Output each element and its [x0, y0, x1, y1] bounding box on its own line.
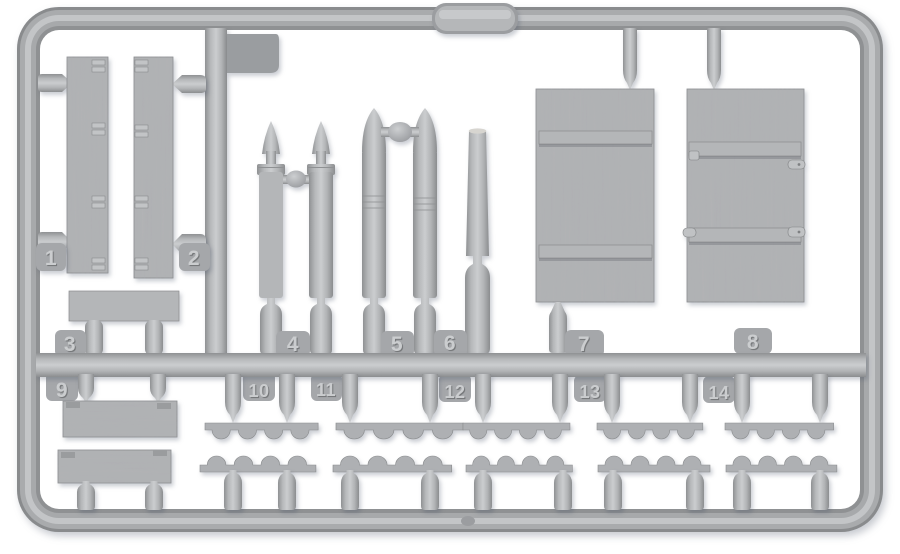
part-number: 7: [578, 333, 590, 356]
part-number: 14: [708, 383, 729, 403]
part-number: 12: [444, 382, 465, 402]
part-number: 1: [45, 247, 57, 270]
part-number: 6: [444, 332, 456, 355]
main-runner: [36, 353, 866, 377]
injection-nub: [461, 516, 475, 526]
sprue-gate: [465, 256, 490, 354]
sprue-gate: [310, 298, 332, 354]
part-number: 11: [316, 380, 336, 400]
part-number: 8: [747, 331, 759, 354]
sprue-gate: [145, 320, 163, 356]
sprue-gate: [85, 320, 103, 356]
sprue-drawing: 1 2: [0, 0, 900, 554]
sprue-knob: [286, 171, 306, 188]
batten: [539, 245, 652, 258]
part-tag-14: 14: [703, 376, 735, 403]
part-number: 13: [579, 382, 600, 402]
part-tag-1: 1: [36, 243, 66, 271]
part-tag-3: 3: [55, 330, 86, 357]
part-number: 9: [56, 379, 68, 402]
moulding-tab: [227, 34, 279, 73]
part-tag-2: 2: [179, 243, 210, 271]
clasp-detail: [157, 403, 171, 409]
clasp-detail: [61, 452, 75, 458]
part-tag-7: 7: [565, 330, 604, 357]
batten: [689, 142, 801, 156]
top-connector-boss: [432, 3, 518, 34]
clasp-detail: [153, 450, 167, 456]
batten: [689, 228, 801, 242]
batten: [539, 131, 652, 144]
part-tag-6: 6: [434, 330, 467, 357]
sprue-photo: 1 2: [0, 0, 900, 554]
clasp-detail: [66, 402, 80, 408]
vertical-runner: [205, 28, 227, 368]
barrel-part-6: [465, 128, 490, 354]
part-number: 3: [64, 333, 76, 356]
part-tag-11: 11: [311, 373, 342, 401]
part-number: 5: [391, 333, 403, 356]
part-tag-13: 13: [574, 375, 606, 402]
part-number: 2: [188, 247, 200, 270]
part-number: 4: [287, 333, 299, 356]
part-number: 10: [248, 381, 269, 401]
part-tag-12: 12: [439, 374, 471, 402]
sprue-gate: [414, 298, 436, 354]
sprue-knob: [388, 122, 412, 142]
part-tag-8: 8: [734, 328, 772, 354]
